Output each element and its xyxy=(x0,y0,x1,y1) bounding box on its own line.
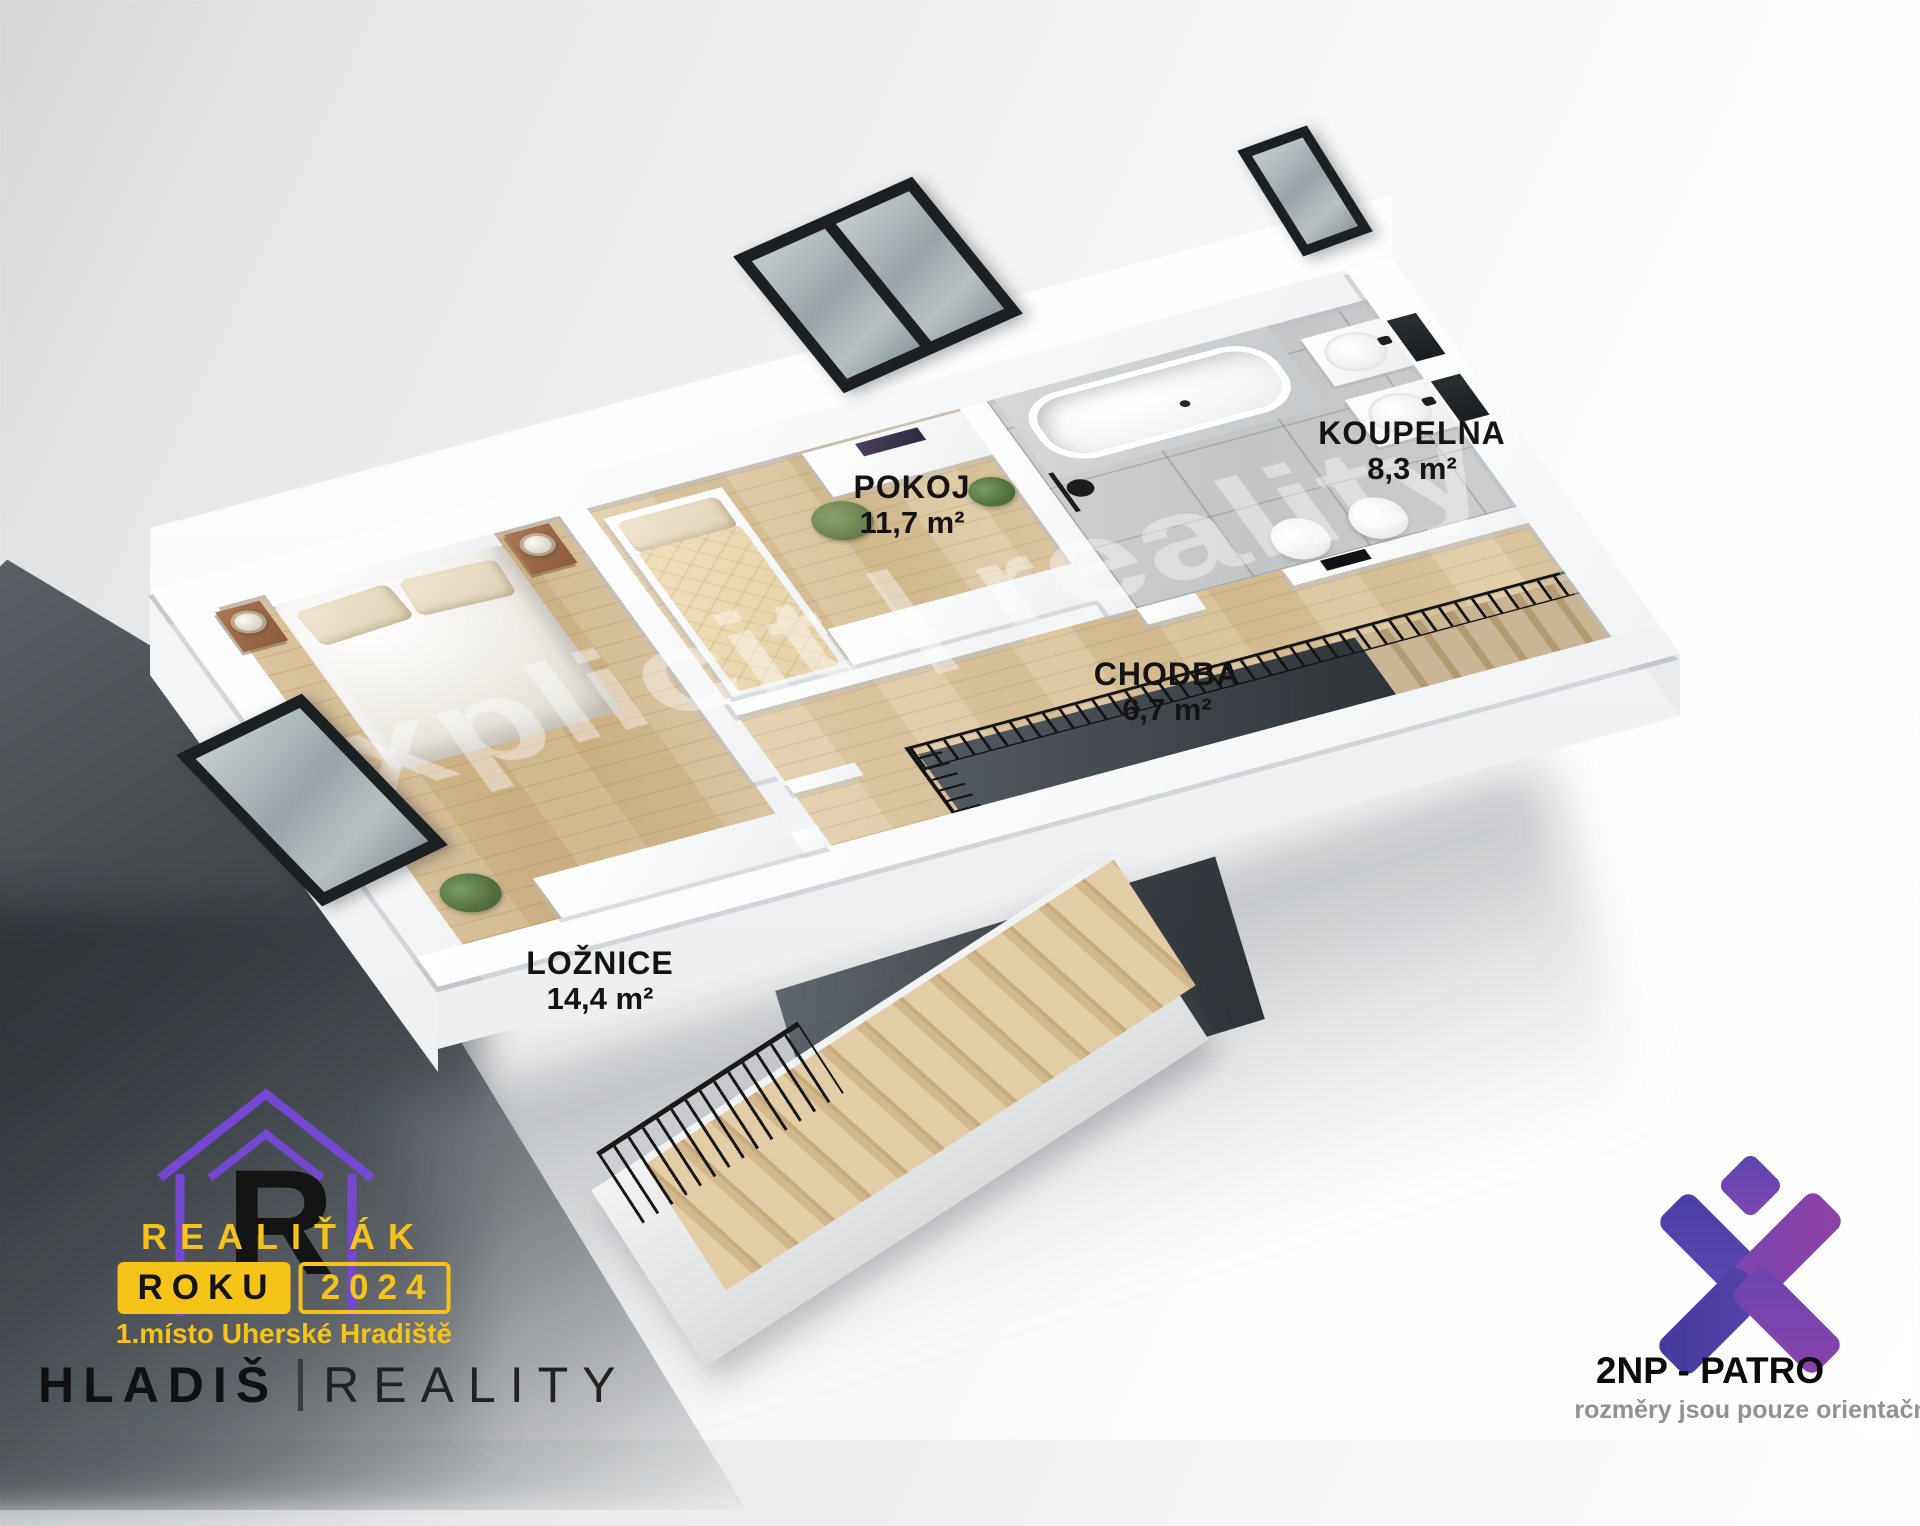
award-subtitle: 1.místo Uherské Hradiště xyxy=(116,1318,452,1350)
room-area: 6,7 m² xyxy=(1094,693,1240,728)
floorplan-render-page: { "watermark": { "text": "xplicit | real… xyxy=(0,0,1920,1440)
brand-suffix: REALITY xyxy=(323,1356,629,1414)
label-loznice: LOŽNICE 14,4 m² xyxy=(526,946,673,1017)
room-area: 14,4 m² xyxy=(526,982,673,1017)
room-area: 8,3 m² xyxy=(1318,452,1506,487)
label-chodba: CHODBA 6,7 m² xyxy=(1094,657,1240,728)
room-area: 11,7 m² xyxy=(853,506,970,541)
award-badge-roku: ROKU xyxy=(118,1262,291,1314)
x-logo-diamond xyxy=(1717,1152,1783,1218)
award-badge-year: 2024 xyxy=(299,1262,451,1314)
room-name: LOŽNICE xyxy=(526,946,673,982)
room-name: KOUPELNA xyxy=(1318,416,1506,452)
brand-logo: HLADIŠ REALITY xyxy=(38,1356,630,1414)
explicit-x-logo xyxy=(1655,1150,1845,1370)
award-year-row: ROKU 2024 xyxy=(118,1262,451,1314)
award-title: REALIŤÁK xyxy=(141,1216,427,1258)
brand-name: HLADIŠ xyxy=(38,1356,278,1414)
label-koupelna: KOUPELNA 8,3 m² xyxy=(1318,416,1506,487)
room-name: POKOJ xyxy=(853,470,970,506)
brand-divider-bar xyxy=(298,1359,303,1411)
floor-title: 2NP - PATRO xyxy=(1596,1350,1824,1392)
room-name: CHODBA xyxy=(1094,657,1240,693)
floor-disclaimer: rozměry jsou pouze orientační xyxy=(1574,1396,1920,1425)
label-pokoj: POKOJ 11,7 m² xyxy=(853,470,970,541)
